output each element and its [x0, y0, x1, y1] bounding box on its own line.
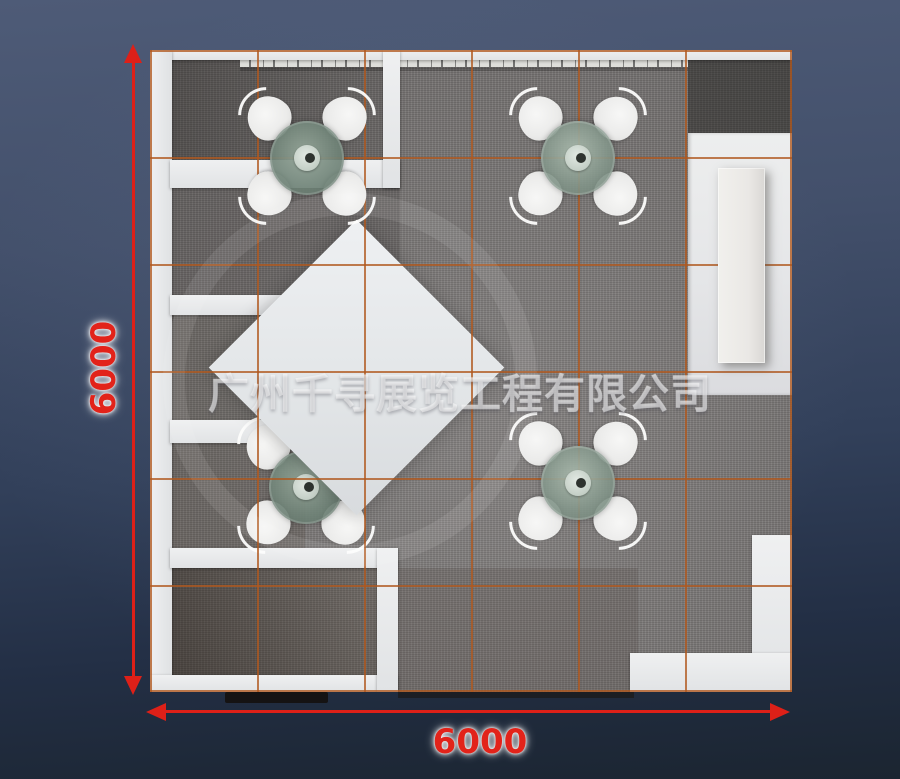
dimension-line-vertical [132, 56, 135, 682]
carpet-shading-bottom-middle [398, 568, 638, 692]
booth-plan [150, 50, 792, 692]
table-item [576, 478, 586, 488]
height-dimension-label: 6000 [84, 304, 124, 432]
arrow-left-icon [146, 703, 166, 721]
carpet-shadow-top-right [688, 60, 792, 133]
arrow-down-icon [124, 676, 142, 695]
left-wall [150, 50, 172, 692]
arrow-right-icon [770, 703, 790, 721]
corner-wall-horizontal [630, 653, 792, 692]
width-dimension-label: 6000 [392, 722, 568, 762]
entrance-shadow-bar [225, 692, 328, 703]
table-item [576, 153, 586, 163]
booth-render-scene: 6000 6000 广州千寻展览工程有限公司 [0, 0, 900, 779]
arrow-up-icon [124, 44, 142, 63]
top-wall [150, 50, 792, 60]
bottom-wall [150, 675, 398, 692]
dimension-line-horizontal [158, 710, 774, 713]
reception-counter [718, 168, 765, 363]
carpet-edge-shadow [398, 692, 634, 698]
table-item [304, 482, 314, 492]
partition-wall-bottom [377, 548, 398, 692]
table-item [305, 153, 315, 163]
niche-e-shading [170, 568, 378, 675]
